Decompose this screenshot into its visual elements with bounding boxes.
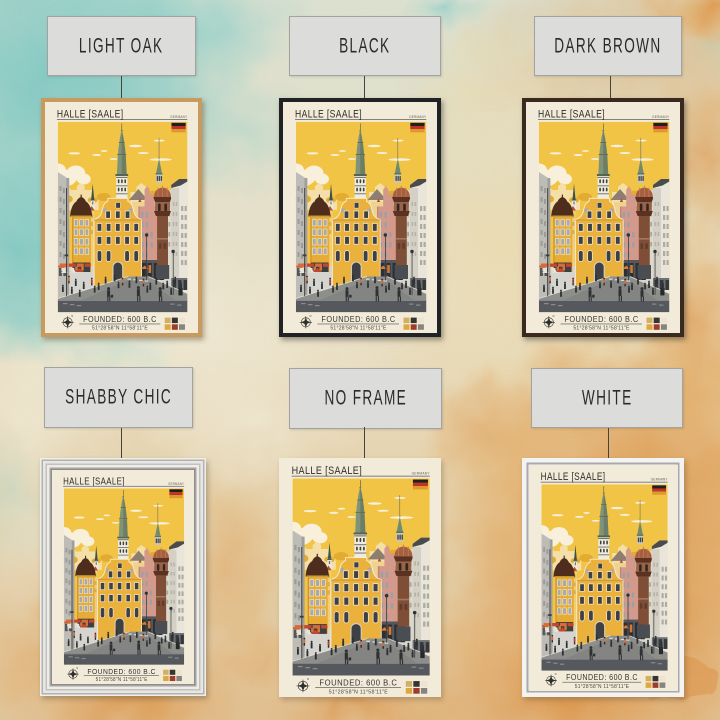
- svg-text:N: N: [71, 315, 73, 318]
- svg-text:51°28'58"N 11°58'11"E: 51°28'58"N 11°58'11"E: [92, 325, 148, 331]
- svg-text:GERMANY: GERMANY: [170, 115, 188, 119]
- svg-text:HALLE [SAALE]: HALLE [SAALE]: [57, 108, 124, 120]
- svg-text:FOUNDED: 600 B.C: FOUNDED: 600 B.C: [83, 315, 157, 325]
